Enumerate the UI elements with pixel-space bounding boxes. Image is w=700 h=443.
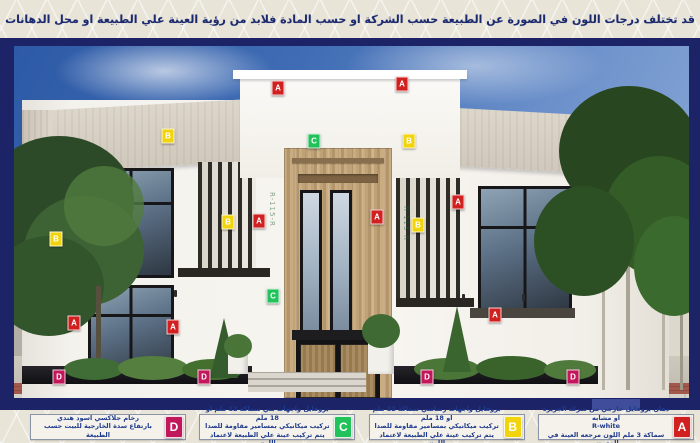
entrance-slit-window-right — [330, 190, 352, 342]
facade-rendering: R-115-R R-115-R — [14, 46, 689, 398]
legend-text-D: رخام جلاكسي اسود هنديبارتفاع سدة الخارجي… — [33, 414, 163, 439]
shrub — [544, 360, 596, 380]
tree-canopy — [534, 186, 634, 296]
legend-box-B: بروفايل واجهات رصاصي سماكة 12 ملم او 18 … — [369, 414, 525, 440]
conical-tree — [443, 306, 471, 372]
legend-text-B: بروفايل واجهات رصاصي سماكة 12 ملم او 18 … — [372, 405, 502, 443]
tree-canopy — [64, 166, 144, 246]
tower-groove — [292, 158, 384, 163]
legend-chip-B: B — [504, 416, 522, 438]
right-floor-band — [470, 308, 575, 318]
watermark: R-115-R — [268, 192, 276, 227]
watermark: R-115-R — [402, 206, 410, 241]
legend-text-A: دهان بروفايل خارجي من شركة الجزيرة او مش… — [541, 405, 671, 443]
wall-sconce — [174, 290, 177, 297]
entrance-steps — [248, 372, 366, 392]
left-soffit — [178, 268, 270, 277]
tree-trunk — [96, 286, 101, 358]
wall-sconce — [462, 294, 465, 301]
legend-chip-C: C — [334, 416, 352, 438]
legend-box-D: رخام جلاكسي اسود هنديبارتفاع سدة الخارجي… — [30, 414, 186, 440]
legend-box-A: دهان بروفايل خارجي من شركة الجزيرة او مش… — [538, 414, 694, 440]
parapet-cornice — [233, 70, 467, 79]
shrub — [64, 358, 124, 380]
planter-plant — [362, 314, 400, 348]
shrub — [118, 356, 188, 380]
legend-text-C: بروفايل واجهات بني سماكة 12 ملم او 18 مل… — [202, 405, 332, 443]
notice-strip: قد تختلف درجات اللون في الصورة عن الطبيع… — [0, 0, 700, 38]
planter-plant — [224, 334, 252, 358]
legend-chip-A: A — [673, 416, 691, 438]
legend-row: رخام جلاكسي اسود هنديبارتفاع سدة الخارجي… — [0, 414, 700, 440]
legend-strip: رخام جلاكسي اسود هنديبارتفاع سدة الخارجي… — [0, 410, 700, 443]
wall-sconce — [522, 294, 525, 301]
shrub — [476, 356, 548, 380]
tower-recess — [298, 174, 378, 183]
color-disclaimer-text: قد تختلف درجات اللون في الصورة عن الطبيع… — [5, 13, 695, 26]
entrance-slit-window-left — [300, 190, 322, 342]
spec-sheet: قد تختلف درجات اللون في الصورة عن الطبيع… — [0, 0, 700, 443]
legend-box-C: بروفايل واجهات بني سماكة 12 ملم او 18 مل… — [199, 414, 355, 440]
legend-chip-D: D — [165, 416, 183, 438]
photo-frame: R-115-R R-115-R — [0, 38, 700, 410]
